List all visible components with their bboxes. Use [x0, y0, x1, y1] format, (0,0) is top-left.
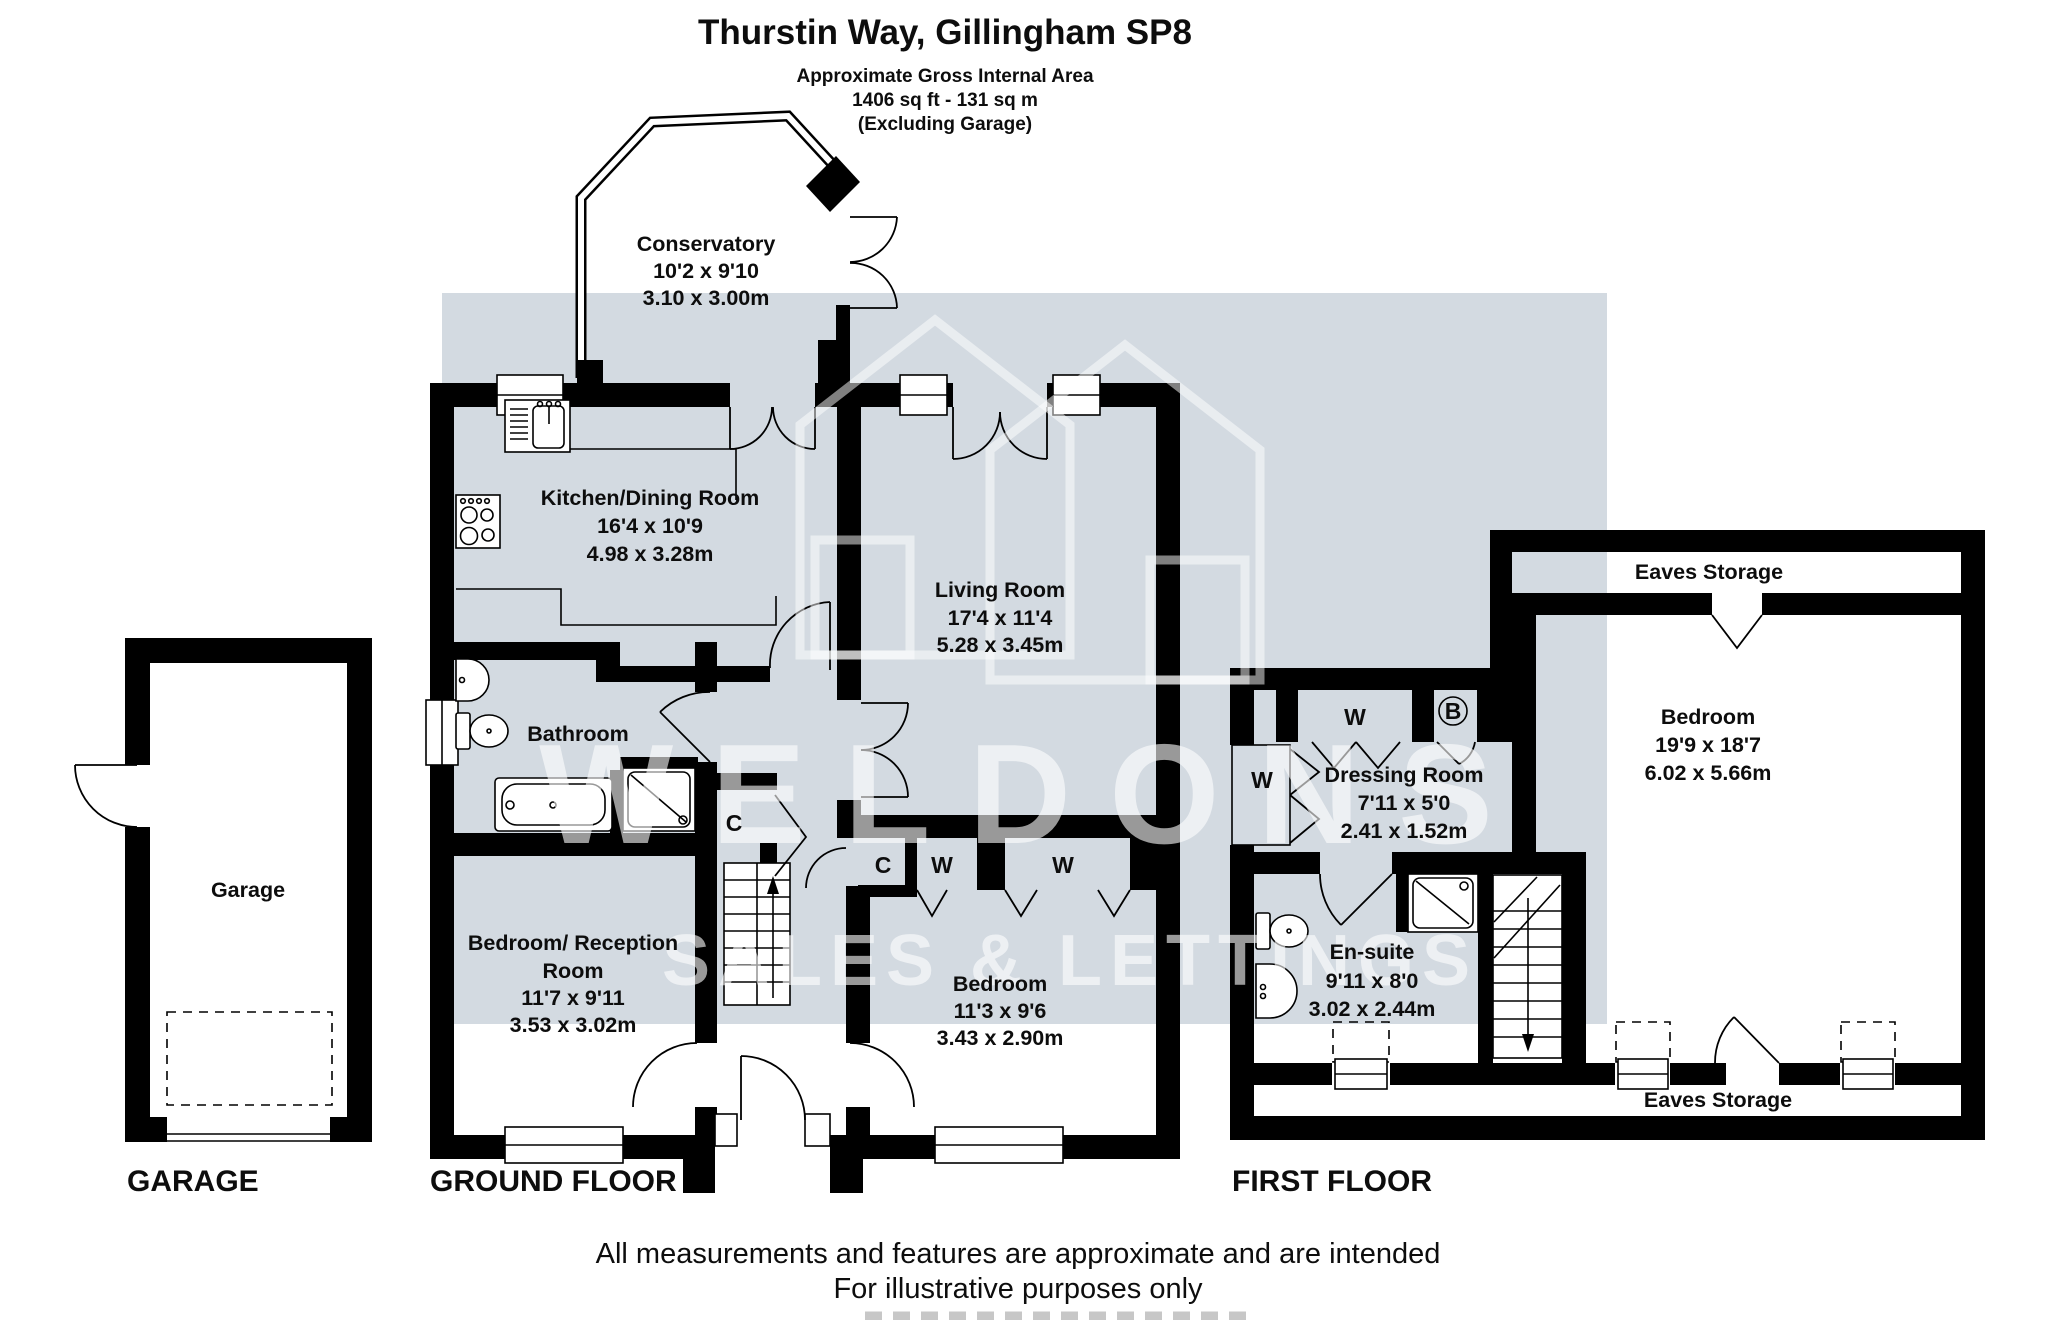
kitchen-metric: 4.98 x 3.28m [587, 542, 714, 566]
closet-w2: W [1052, 852, 1074, 878]
subtitle-size: 1406 sq ft - 131 sq m [852, 90, 1038, 111]
eaves-storage-bottom: Eaves Storage [1644, 1088, 1792, 1112]
garage-room-label: Garage [211, 878, 285, 902]
floorplan-canvas: WELDONS SALES & LETTINGS Thurstin Way, G… [0, 0, 2048, 1320]
dressing-room-imperial: 7'11 x 5'0 [1358, 791, 1451, 815]
closet-w-top: W [1344, 704, 1366, 730]
bedroom-reception-imperial: 11'7 x 9'11 [521, 986, 625, 1010]
living-room-name: Living Room [935, 578, 1065, 602]
bedroom-reception-line1: Bedroom/ Reception [468, 931, 678, 955]
floor-labels: GARAGE GROUND FLOOR FIRST FLOOR [127, 1165, 1432, 1198]
closet-w1: W [931, 852, 953, 878]
ground-floor-label: GROUND FLOOR [430, 1165, 677, 1198]
bathroom-toilet [456, 713, 508, 749]
ensuite-imperial: 9'11 x 8'0 [1326, 969, 1419, 993]
ensuite-name: En-suite [1330, 940, 1415, 964]
bathroom-name: Bathroom [527, 722, 629, 746]
closet-w-left: W [1251, 767, 1273, 793]
bedroom-reception-line2: Room [543, 959, 604, 983]
closet-c-hall: C [726, 810, 743, 836]
hob [456, 495, 500, 548]
boiler-letter: B [1445, 698, 1462, 724]
dressing-room-name: Dressing Room [1325, 763, 1484, 787]
subtitle-note: (Excluding Garage) [858, 114, 1032, 135]
bedroom-first-name: Bedroom [1661, 705, 1755, 729]
conservatory-imperial: 10'2 x 9'10 [653, 259, 759, 283]
conservatory-metric: 3.10 x 3.00m [643, 286, 770, 310]
kitchen-imperial: 16'4 x 10'9 [597, 514, 703, 538]
conservatory-name: Conservatory [637, 232, 776, 256]
bedroom-first-metric: 6.02 x 5.66m [1645, 761, 1772, 785]
dressing-room-metric: 2.41 x 1.52m [1341, 819, 1468, 843]
page-title: Thurstin Way, Gillingham SP8 [698, 13, 1192, 52]
closet-c-bedroom: C [875, 852, 892, 878]
eaves-storage-top: Eaves Storage [1635, 560, 1783, 584]
bedroom-ground-imperial: 11'3 x 9'6 [954, 999, 1047, 1023]
subtitle-area: Approximate Gross Internal Area [796, 66, 1093, 87]
bedroom-first-imperial: 19'9 x 18'7 [1655, 733, 1761, 757]
living-room-imperial: 17'4 x 11'4 [948, 606, 1053, 630]
kitchen-sink [505, 400, 570, 452]
disclaimer-line2: For illustrative purposes only [833, 1273, 1203, 1305]
disclaimer-line1: All measurements and features are approx… [596, 1238, 1441, 1270]
bedroom-ground-metric: 3.43 x 2.90m [937, 1026, 1064, 1050]
garage-door-area [167, 1012, 332, 1105]
stairs-down [1493, 875, 1562, 1058]
garage-floor-label: GARAGE [127, 1165, 259, 1198]
bedroom-reception-metric: 3.53 x 3.02m [510, 1013, 637, 1037]
living-room-metric: 5.28 x 3.45m [937, 633, 1064, 657]
bathroom-basin [456, 659, 489, 701]
ensuite-metric: 3.02 x 2.44m [1309, 997, 1436, 1021]
kitchen-name: Kitchen/Dining Room [541, 486, 760, 510]
footer: All measurements and features are approx… [596, 1238, 1441, 1316]
first-floor-label: FIRST FLOOR [1232, 1165, 1432, 1198]
bedroom-ground-name: Bedroom [953, 972, 1047, 996]
